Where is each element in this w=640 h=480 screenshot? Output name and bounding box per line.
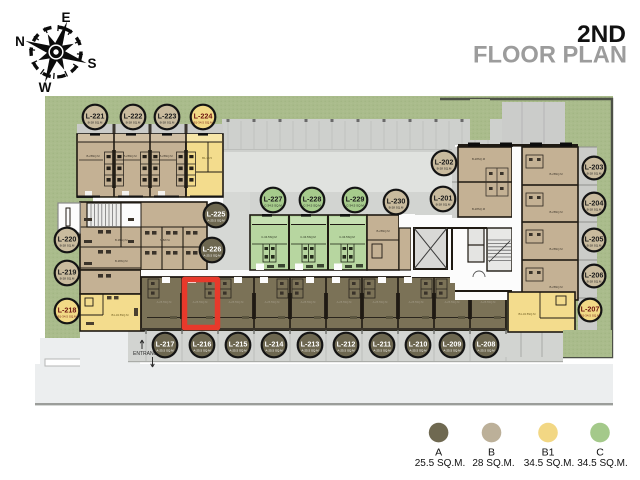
svg-text:L-223: L-223: [158, 112, 177, 121]
svg-text:B-28 SQ.M: B-28 SQ.M: [60, 277, 75, 281]
svg-text:B-28SQ.M: B-28SQ.M: [86, 154, 100, 158]
svg-text:L-205: L-205: [585, 235, 604, 244]
svg-text:25.5 SQ.M.: 25.5 SQ.M.: [415, 458, 466, 469]
svg-text:B-28 SQ.M: B-28 SQ.M: [160, 121, 175, 125]
svg-text:C-34.5 SQ.M: C-34.5 SQ.M: [264, 204, 282, 208]
svg-text:L-226: L-226: [203, 245, 222, 254]
svg-text:S: S: [87, 56, 96, 71]
svg-text:L-204: L-204: [585, 199, 604, 208]
svg-text:B-28 SQ.M: B-28 SQ.M: [587, 172, 602, 176]
svg-text:L-224: L-224: [194, 112, 213, 121]
svg-text:A-25.5 SQ.M: A-25.5 SQ.M: [337, 349, 355, 353]
svg-text:A-25.5 SQ.M: A-25.5 SQ.M: [203, 254, 221, 258]
svg-text:B-28 SQ.M: B-28 SQ.M: [88, 121, 103, 125]
svg-text:N-BATH: N-BATH: [160, 238, 170, 242]
svg-text:B1-34.5SQ.M: B1-34.5SQ.M: [519, 312, 537, 316]
svg-text:A-25.5SQ.M: A-25.5SQ.M: [157, 300, 173, 304]
svg-text:A-25.5 SQ.M: A-25.5 SQ.M: [373, 349, 391, 353]
svg-text:34.5 SQ.M.: 34.5 SQ.M.: [577, 458, 628, 469]
svg-text:L-212: L-212: [337, 340, 356, 349]
svg-text:A-25.5 SQ.M: A-25.5 SQ.M: [156, 349, 174, 353]
svg-text:L-206: L-206: [585, 271, 604, 280]
svg-text:L-228: L-228: [303, 195, 322, 204]
svg-text:B1-34.5 SQ.M: B1-34.5 SQ.M: [57, 315, 77, 319]
svg-text:B-28SQ.M: B-28SQ.M: [549, 285, 563, 289]
svg-text:C-34.5 SQ.M: C-34.5 SQ.M: [303, 204, 321, 208]
svg-text:C-34.5SQ.M: C-34.5SQ.M: [261, 235, 277, 239]
svg-text:L-219: L-219: [58, 268, 77, 277]
svg-text:A-25.5 SQ.M: A-25.5 SQ.M: [409, 349, 427, 353]
svg-text:B-28 SQ.M: B-28 SQ.M: [60, 244, 75, 248]
svg-text:L-214: L-214: [265, 340, 284, 349]
svg-text:C-34.5 SQ.M: C-34.5 SQ.M: [346, 204, 364, 208]
svg-text:A-25.5SQ.M: A-25.5SQ.M: [193, 300, 209, 304]
svg-text:L-229: L-229: [346, 195, 365, 204]
svg-text:L-222: L-222: [124, 112, 143, 121]
svg-text:E: E: [61, 10, 70, 25]
svg-text:A-25.5 SQ.M: A-25.5 SQ.M: [443, 349, 461, 353]
svg-text:B-28SQ.M: B-28SQ.M: [472, 157, 486, 161]
svg-text:L-220: L-220: [58, 235, 77, 244]
svg-text:L-210: L-210: [409, 340, 428, 349]
svg-text:B-28SQ.M: B-28SQ.M: [376, 229, 390, 233]
svg-text:A-25.5SQ.M: A-25.5SQ.M: [481, 300, 497, 304]
svg-text:B1-34.5SQ.M: B1-34.5SQ.M: [112, 313, 130, 317]
svg-text:B-28 SQ.M: B-28 SQ.M: [389, 206, 404, 210]
svg-text:A-25.5SQ.M: A-25.5SQ.M: [301, 300, 317, 304]
svg-text:A-25.5 SQ.M: A-25.5 SQ.M: [301, 349, 319, 353]
svg-text:A-25.5SQ.M: A-25.5SQ.M: [229, 300, 245, 304]
svg-text:A: A: [435, 447, 442, 459]
svg-text:L-215: L-215: [229, 340, 248, 349]
svg-text:A-25.5 SQ.M: A-25.5 SQ.M: [477, 349, 495, 353]
svg-text:A-25.5SQ.M: A-25.5SQ.M: [265, 300, 281, 304]
svg-text:C-34.5SQ.M: C-34.5SQ.M: [339, 235, 355, 239]
svg-text:B-28SQ.M: B-28SQ.M: [549, 172, 563, 176]
svg-text:B1: B1: [542, 447, 555, 459]
svg-text:A-25.5SQ.M: A-25.5SQ.M: [373, 300, 389, 304]
svg-text:C-34.5SQ.M: C-34.5SQ.M: [300, 235, 316, 239]
svg-text:B-28SQ.M: B-28SQ.M: [115, 259, 128, 263]
svg-text:B1-34.5: B1-34.5: [202, 156, 212, 160]
svg-text:A-25.5 SQ.M: A-25.5 SQ.M: [207, 219, 225, 223]
svg-text:L-227: L-227: [264, 195, 283, 204]
svg-text:L-218: L-218: [58, 306, 77, 315]
svg-text:L-225: L-225: [207, 210, 226, 219]
svg-text:B: B: [488, 447, 495, 459]
svg-text:B-28SQ.M: B-28SQ.M: [159, 154, 173, 158]
svg-text:L-209: L-209: [443, 340, 462, 349]
svg-text:B1-34.5 SQ.M: B1-34.5 SQ.M: [193, 121, 213, 125]
svg-text:L-208: L-208: [477, 340, 496, 349]
svg-text:B-28 SQ.M: B-28 SQ.M: [436, 203, 451, 207]
svg-text:B-28 SQ.M: B-28 SQ.M: [437, 167, 452, 171]
svg-text:34.5 SQ.M.: 34.5 SQ.M.: [524, 458, 575, 469]
svg-text:A-25.5 SQ.M: A-25.5 SQ.M: [265, 349, 283, 353]
svg-text:B-28SQ.M: B-28SQ.M: [549, 210, 563, 214]
svg-text:A-25.5SQ.M: A-25.5SQ.M: [337, 300, 353, 304]
svg-text:A-25.5SQ.M: A-25.5SQ.M: [445, 300, 461, 304]
svg-text:A-25.5 SQ.M: A-25.5 SQ.M: [193, 349, 211, 353]
svg-text:L-203: L-203: [585, 163, 604, 172]
svg-text:B-28 SQ.M: B-28 SQ.M: [126, 121, 141, 125]
svg-text:A-25.5 SQ.M: A-25.5 SQ.M: [229, 349, 247, 353]
svg-text:L-230: L-230: [387, 197, 406, 206]
svg-text:A-25.5SQ.M: A-25.5SQ.M: [409, 300, 425, 304]
svg-text:L-213: L-213: [301, 340, 320, 349]
svg-text:B-28SQ.M: B-28SQ.M: [472, 207, 486, 211]
svg-text:W: W: [39, 80, 52, 95]
svg-text:L-202: L-202: [435, 158, 454, 167]
svg-text:B-28 SQ.M: B-28 SQ.M: [587, 280, 602, 284]
svg-text:B1-34.5 SQ.M: B1-34.5 SQ.M: [580, 314, 600, 318]
svg-text:B-28 SQ.M: B-28 SQ.M: [587, 244, 602, 248]
svg-text:C: C: [596, 447, 604, 459]
svg-text:L-201: L-201: [434, 194, 453, 203]
svg-text:L-207: L-207: [581, 305, 600, 314]
svg-text:B-28SQ.M: B-28SQ.M: [115, 238, 128, 242]
svg-text:B-28SQ.M: B-28SQ.M: [123, 154, 137, 158]
svg-text:L-216: L-216: [193, 340, 212, 349]
svg-text:L-221: L-221: [86, 112, 105, 121]
svg-text:FLOOR PLAN: FLOOR PLAN: [473, 43, 627, 69]
svg-text:N: N: [15, 34, 25, 49]
svg-text:28 SQ.M.: 28 SQ.M.: [472, 458, 514, 469]
svg-text:L-211: L-211: [373, 340, 391, 349]
svg-text:B-28SQ.M: B-28SQ.M: [549, 247, 563, 251]
svg-text:L-217: L-217: [156, 340, 175, 349]
svg-text:B-28 SQ.M: B-28 SQ.M: [587, 208, 602, 212]
